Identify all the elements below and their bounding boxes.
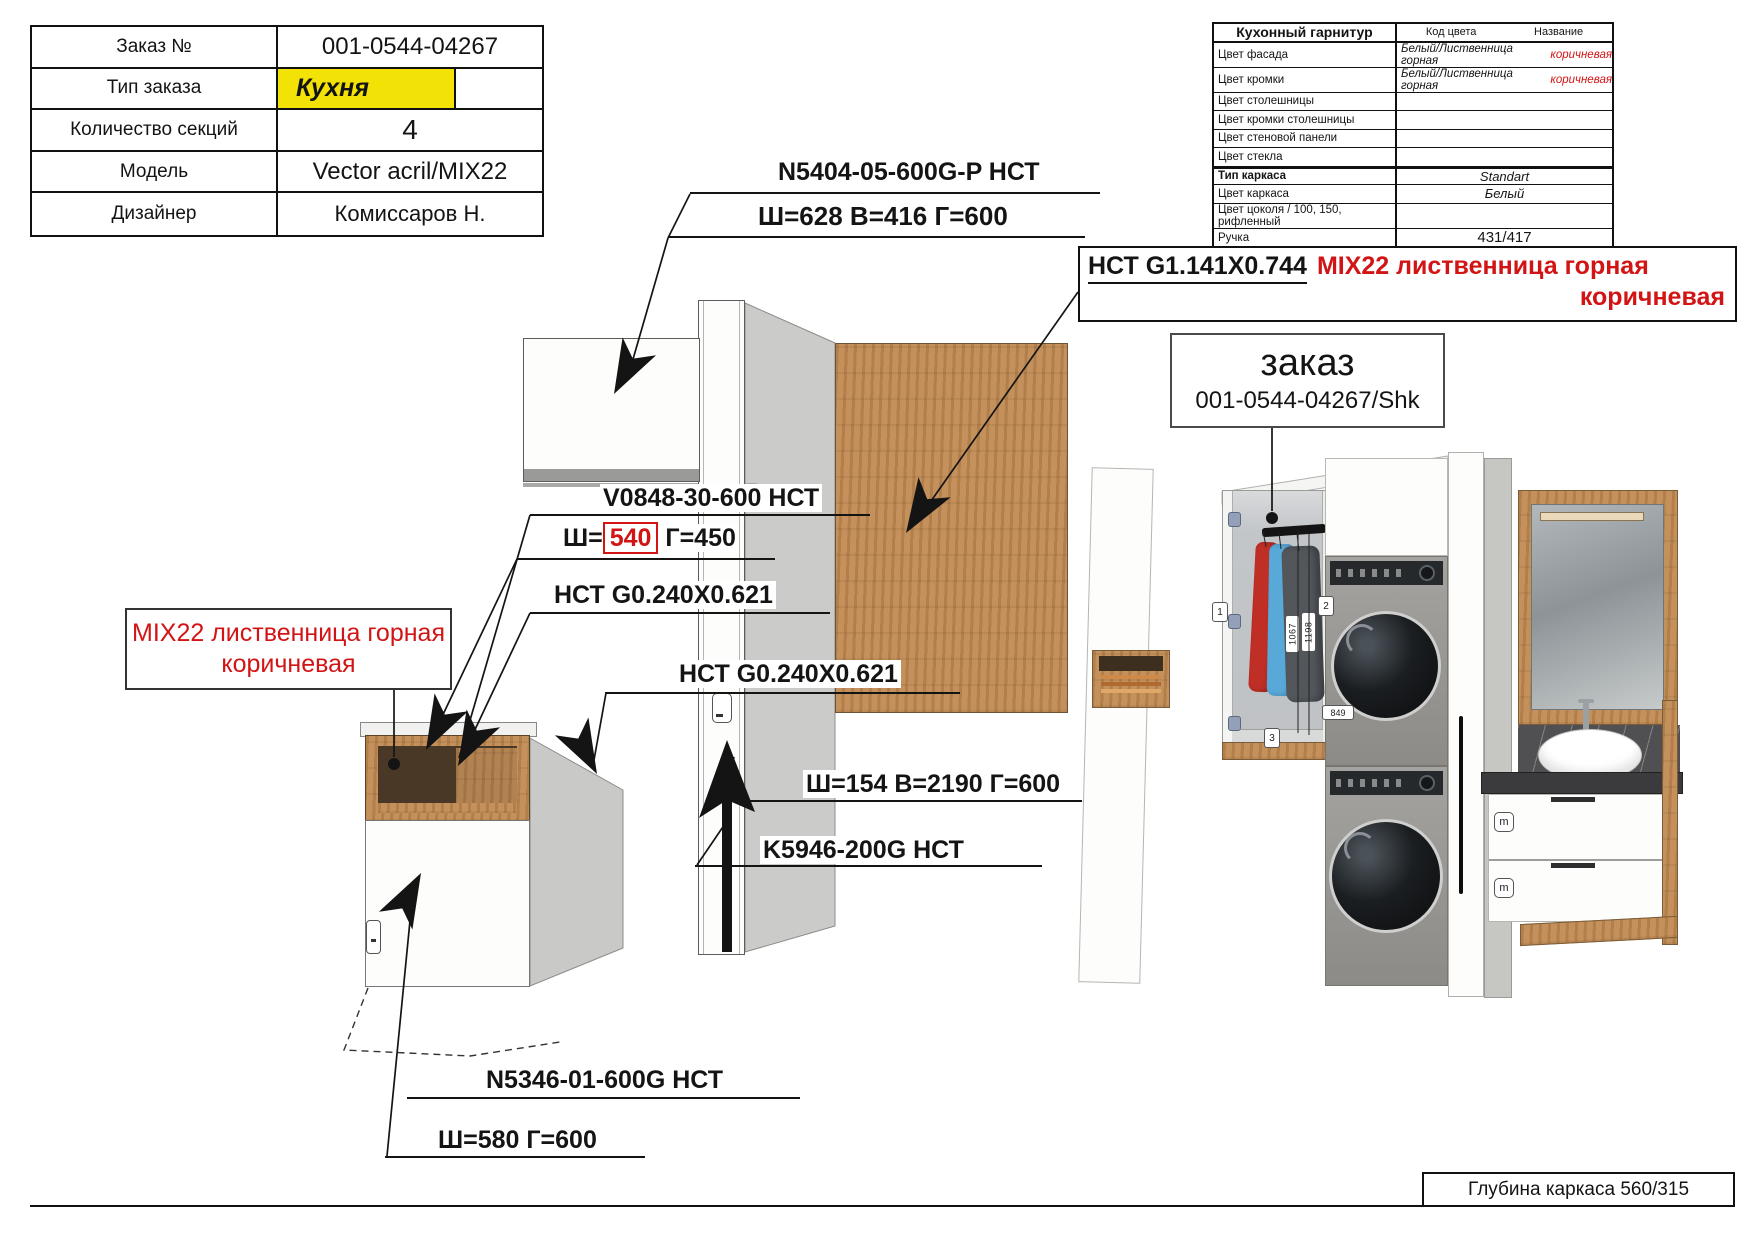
spec-row-label: Цвет фасада	[1214, 43, 1397, 68]
dryer-knob	[1419, 565, 1435, 581]
upper-wall-cabinet	[523, 338, 700, 482]
vanity-drawers	[1488, 794, 1668, 922]
washer-knob	[1419, 775, 1435, 791]
dim-badge: 1067	[1285, 615, 1300, 653]
spec-row-label: Цвет кромки столешницы	[1214, 111, 1397, 130]
base-cabinet-dims-label: Ш=580 Г=600	[435, 1126, 600, 1154]
niche-back-panel	[456, 748, 518, 806]
spec-row-label: Цвет столешницы	[1214, 93, 1397, 112]
dryer	[1325, 556, 1448, 766]
color-spec-table: Кухонный гарнитур Код цвета Название Цве…	[1212, 22, 1614, 249]
countertop	[1481, 772, 1683, 794]
upper-white-box	[1325, 458, 1448, 556]
spec-row-value: Белый/Лиственница горнаякоричневая	[1397, 68, 1612, 93]
order-ref-title: заказ	[1172, 343, 1443, 385]
drawer-box-opening	[1099, 656, 1163, 671]
callout-underline	[668, 236, 1085, 238]
tall-cabinet-door	[1448, 452, 1484, 997]
callout-underline	[530, 612, 830, 614]
dim-1067-label: 1067	[1288, 623, 1298, 645]
wood-decor-panel	[835, 343, 1068, 713]
shelf-depth: Г=450	[665, 524, 735, 552]
spec-row-label: Цвет каркаса	[1214, 185, 1397, 204]
order-type-value-highlighted: Кухня	[278, 69, 456, 109]
marker-badge: 1	[1212, 602, 1228, 622]
spec-row-label: Цвет цоколя / 100, 150, рифленный	[1214, 204, 1397, 229]
hinge-mark-dash	[716, 714, 723, 717]
niche-shelf	[378, 803, 517, 813]
spec-row-value	[1397, 130, 1612, 149]
dim-badge: 1198	[1301, 612, 1316, 652]
tall-door-handle	[1459, 716, 1463, 894]
marker-1-label: 1	[1217, 607, 1223, 618]
dryer-control-panel	[1330, 561, 1443, 585]
panel-edge-line	[703, 301, 704, 954]
order-number-value: 001-0544-04267	[278, 27, 542, 69]
designer-label: Дизайнер	[32, 193, 278, 235]
order-ref-number: 001-0544-04267/Shk	[1172, 387, 1443, 415]
drawer-handle	[1551, 797, 1595, 802]
callout-underline	[407, 1097, 800, 1099]
spec-value-red: коричневая	[1550, 74, 1612, 86]
dim-1198-label: 1198	[1304, 621, 1314, 642]
spec-value-red: коричневая	[1550, 49, 1612, 61]
callout-underline	[718, 800, 1082, 802]
shelf-code-label: V0848-30-600 НСТ	[600, 484, 822, 512]
mirror	[1531, 504, 1664, 710]
panel-color-red: MIX22 лиственница горная	[1317, 252, 1649, 280]
upper-cabinet-bottom-strip	[524, 469, 699, 481]
callout-underline	[385, 1156, 645, 1158]
towel-roll	[1101, 689, 1161, 693]
panel-note-line1: НСТ G1.141X0.744MIX22 лиственница горная	[1088, 252, 1725, 281]
spec-row-label: Цвет кромки	[1214, 68, 1397, 93]
wood-drawer-box	[1092, 650, 1170, 708]
order-sheet: 1 2 3 1067 1198 849 m m Заказ № 001-0544…	[0, 0, 1753, 1240]
spec-value: Белый/Лиственница горная	[1401, 43, 1546, 67]
dim-849-label: 849	[1330, 708, 1345, 718]
spec-row-value: Белый	[1397, 185, 1612, 204]
dim-badge: 849	[1322, 705, 1354, 720]
mix22-color-note: MIX22 лиственница горная коричневая	[125, 608, 452, 690]
spec-value: Белый/Лиственница горная	[1401, 68, 1546, 92]
door-handle	[366, 920, 381, 954]
callout-underline	[695, 865, 1042, 867]
spec-row-value	[1397, 148, 1612, 167]
spec-row-label: Тип каркаса	[1214, 167, 1397, 186]
sections-count-label: Количество секций	[32, 110, 278, 152]
arrowhead	[555, 717, 614, 783]
callout-underline	[517, 558, 775, 560]
hinge	[1228, 716, 1241, 731]
m-badge: m	[1494, 878, 1514, 898]
spec-row-label: Ручка	[1214, 229, 1397, 248]
door-glass-highlight	[1344, 832, 1376, 864]
spec-table-title: Кухонный гарнитур	[1214, 24, 1397, 43]
plinth-code-label: K5946-200G НСТ	[760, 836, 967, 864]
marker-3-label: 3	[1269, 733, 1275, 744]
shelf-width-prefix: Ш=	[563, 524, 603, 552]
callout-underline	[605, 692, 960, 694]
door-handle-slot	[371, 939, 376, 942]
spec-row-label: Цвет стекла	[1214, 148, 1397, 167]
side-panel-code-2-label: НСТ G0.240X0.621	[676, 660, 901, 688]
sections-count-value: 4	[278, 110, 542, 152]
shelf-width-value: 540	[603, 522, 659, 554]
callout-underline	[690, 192, 1100, 194]
panel-edge-line	[739, 301, 740, 954]
washer-door	[1329, 819, 1443, 933]
drawer-divider	[1489, 859, 1667, 861]
marker-badge: 2	[1318, 596, 1334, 616]
drawer-m-bottom-label: m	[1499, 882, 1508, 894]
floor-dashed-lines	[344, 988, 560, 1056]
door-glass-highlight	[1346, 624, 1378, 656]
upper-cabinet-dims-label: Ш=628 В=416 Г=600	[755, 202, 1011, 231]
washer-control-panel	[1330, 771, 1443, 795]
hinge-mark-badge	[712, 693, 732, 723]
decor-panel-note: НСТ G1.141X0.744MIX22 лиственница горная…	[1078, 246, 1737, 322]
shelf-dims-label: Ш=540 Г=450	[560, 524, 739, 552]
order-reference-box: заказ 001-0544-04267/Shk	[1170, 333, 1445, 428]
col-name-header: Название	[1534, 26, 1583, 38]
order-type-cell: Кухня	[278, 69, 542, 111]
order-info-table: Заказ № 001-0544-04267 Тип заказа Кухня …	[30, 25, 544, 237]
control-lights	[1336, 569, 1406, 577]
towel-roll	[1101, 682, 1161, 686]
washer	[1325, 766, 1448, 986]
mirror-light-bar	[1540, 512, 1644, 521]
frame-depth-note: Глубина каркаса 560/315	[1422, 1172, 1735, 1205]
spec-row-value	[1397, 111, 1612, 130]
spec-row-value: Белый/Лиственница горнаякоричневая	[1397, 43, 1612, 68]
panel-code: НСТ G1.141X0.744	[1088, 252, 1307, 284]
tall-filler-panel	[698, 300, 745, 955]
spec-row-value: 431/417	[1397, 229, 1612, 248]
tall-panel-dims-label: Ш=154 В=2190 Г=600	[803, 770, 1063, 798]
footer-line	[30, 1205, 1735, 1207]
col-code-header: Код цвета	[1426, 26, 1477, 38]
model-label: Модель	[32, 152, 278, 194]
faucet-spout	[1578, 699, 1594, 703]
towel-roll	[1101, 675, 1161, 679]
spec-row-label: Цвет стеновой панели	[1214, 130, 1397, 149]
callout-underline	[530, 514, 870, 516]
spec-table-col-headers: Код цвета Название	[1397, 24, 1612, 43]
order-number-label: Заказ №	[32, 27, 278, 69]
model-value: Vector acril/MIX22	[278, 152, 542, 194]
marker-badge: 3	[1264, 728, 1280, 748]
m-badge: m	[1494, 812, 1514, 832]
mix22-note-line2: коричневая	[127, 649, 450, 680]
mix22-note-line1: MIX22 лиственница горная	[127, 618, 450, 649]
base-cabinet-door	[365, 820, 530, 987]
spec-row-value	[1397, 204, 1612, 229]
base-cabinet-code-label: N5346-01-600G НСТ	[483, 1066, 726, 1094]
wardrobe-open-door	[1078, 467, 1153, 983]
base-cabinet-side	[530, 738, 623, 986]
control-lights	[1336, 779, 1406, 787]
hinge	[1228, 512, 1241, 527]
spec-row-value	[1397, 93, 1612, 112]
drawer-handle	[1551, 863, 1595, 868]
base-cabinet-niche	[365, 735, 530, 822]
panel-color-red-line2: коричневая	[1088, 283, 1725, 312]
side-panel-code-1-label: НСТ G0.240X0.621	[551, 581, 776, 609]
designer-value: Комиссаров Н.	[278, 193, 542, 235]
hinge	[1228, 614, 1241, 629]
drawer-m-top-label: m	[1499, 816, 1508, 828]
spec-row-value: Standart	[1397, 167, 1612, 186]
upper-cabinet-code-label: N5404-05-600G-P НСТ	[775, 158, 1043, 186]
order-type-label: Тип заказа	[32, 69, 278, 111]
marker-2-label: 2	[1323, 601, 1329, 612]
vanity-wood-stile	[1662, 700, 1678, 945]
